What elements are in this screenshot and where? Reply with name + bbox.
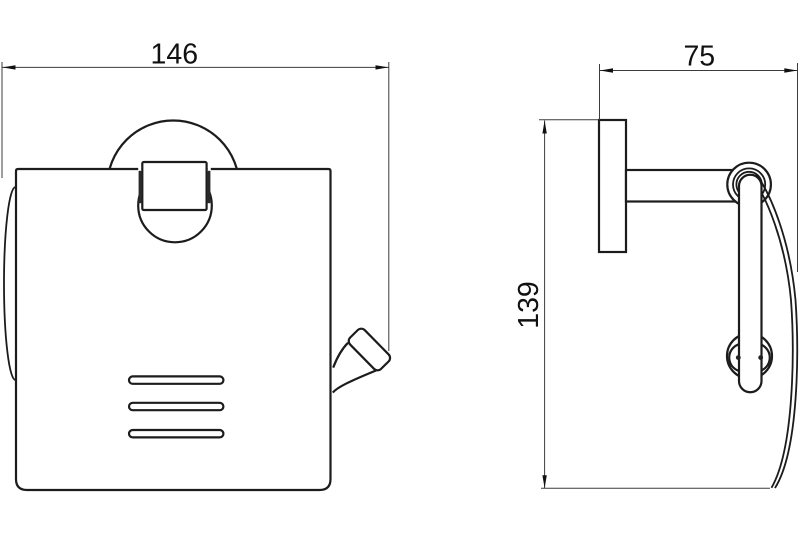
svg-text:139: 139 — [513, 281, 545, 329]
svg-text:146: 146 — [151, 39, 199, 71]
svg-text:75: 75 — [683, 41, 715, 73]
